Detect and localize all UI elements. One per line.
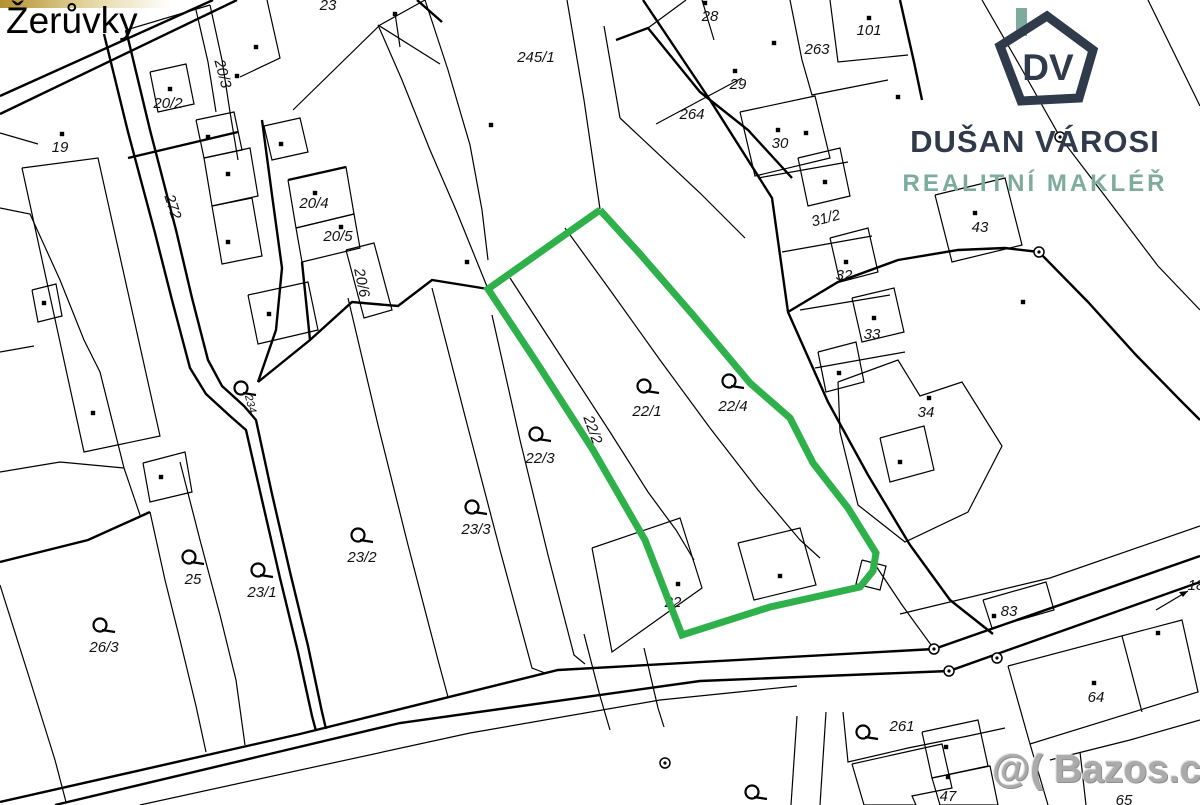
- parcel-boundary-line: [900, 526, 1200, 614]
- building-dot: [676, 582, 680, 586]
- parcel-label-20-4: 20/4: [298, 195, 328, 212]
- parcel-label-261: 261: [888, 718, 914, 735]
- building-dot: [1156, 631, 1160, 635]
- building-dot: [778, 574, 782, 578]
- parcel-label-264: 264: [678, 106, 704, 123]
- parcel-boundary-line: [264, 118, 308, 160]
- building-dot: [235, 74, 239, 78]
- parcel-label-26-3: 26/3: [88, 639, 119, 656]
- building-dot: [823, 180, 827, 184]
- land-use-symbol-tail: [360, 540, 373, 542]
- parcel-boundary-line: [1008, 620, 1198, 744]
- building-dot: [267, 312, 271, 316]
- building-dot: [898, 460, 902, 464]
- parcel-boundary-line: [32, 284, 62, 322]
- parcel-boundary-line: [143, 452, 192, 502]
- parcel-boundary-line: [1039, 252, 1200, 420]
- parcel-label-20-5: 20/5: [322, 228, 353, 245]
- building-dot: [168, 87, 172, 91]
- parcel-label-43: 43: [972, 219, 989, 236]
- land-use-symbol-tail: [191, 562, 204, 564]
- building-dot: [254, 45, 258, 49]
- building-dot: [837, 371, 841, 375]
- building-dot: [992, 614, 996, 618]
- parcel-boundary-line: [417, 0, 442, 22]
- parcel-label-32: 32: [836, 267, 853, 284]
- building-dot: [60, 132, 64, 136]
- parcel-boundary-line: [738, 528, 816, 600]
- land-use-symbol-tail: [102, 630, 115, 632]
- parcel-boundary-line: [204, 148, 258, 206]
- parcel-boundary-line: [302, 262, 310, 340]
- land-use-symbol-tail: [474, 512, 487, 514]
- building-dot: [226, 240, 230, 244]
- building-dot: [703, 1, 707, 5]
- parcel-boundary-line: [348, 298, 448, 697]
- parcel-boundary-line: [0, 208, 124, 468]
- parcel-boundary-line: [791, 716, 797, 805]
- parcel-label-272: 272: [160, 191, 184, 222]
- parcel-boundary-line: [140, 686, 797, 805]
- parcel-label-65: 65: [1116, 792, 1133, 805]
- parcel-label-23-3: 23/3: [460, 521, 491, 538]
- parcel-label-23: 23: [319, 0, 337, 14]
- parcel-label-64: 64: [1088, 689, 1105, 706]
- parcel-boundary-line: [798, 148, 850, 206]
- cadastral-map-page: 2320/320/21927220/420/520/6245/128101263…: [0, 0, 1200, 805]
- parcel-boundary-line: [565, 228, 820, 558]
- building-dot: [733, 69, 737, 73]
- building-dot: [1092, 681, 1096, 685]
- land-use-symbol-tail: [731, 386, 744, 388]
- building-dot: [465, 260, 469, 264]
- parcel-boundary-line: [510, 278, 694, 560]
- parcel-label-23-2: 23/2: [346, 549, 377, 566]
- parcel-boundary-line: [240, 0, 280, 77]
- building-dot: [206, 135, 210, 139]
- building-dot: [804, 131, 808, 135]
- building-dot: [946, 775, 950, 779]
- parcel-boundary-line: [983, 582, 1054, 628]
- building-dot: [279, 142, 283, 146]
- logo-monogram: DV: [1022, 47, 1074, 88]
- parcel-boundary-line: [0, 133, 38, 144]
- parcel-label-19: 19: [52, 139, 69, 156]
- parcel-label-263: 263: [803, 41, 830, 58]
- land-use-symbol-tail: [865, 737, 878, 739]
- parcel-boundary-line: [567, 0, 600, 209]
- parcel-label-22-3: 22/3: [524, 450, 555, 467]
- parcel-label-34: 34: [918, 404, 935, 421]
- building-dot: [91, 411, 95, 415]
- building-dot: [772, 41, 776, 45]
- building-dot: [776, 128, 780, 132]
- parcel-boundary-line: [818, 342, 864, 392]
- parcel-boundary-line: [872, 560, 934, 649]
- parcel-boundary-line: [820, 712, 826, 805]
- parcel-boundary-line: [815, 352, 905, 368]
- building-dot: [393, 12, 397, 16]
- parcel-label-47: 47: [940, 788, 957, 805]
- realtor-logo: DV DUŠAN VÁROSI REALITNÍ MAKLÉŘ: [870, 0, 1200, 215]
- building-dot: [844, 260, 848, 264]
- building-dot: [226, 172, 230, 176]
- parcel-label-20-2: 20/2: [152, 95, 183, 112]
- building-dot: [42, 301, 46, 305]
- parcel-label-245-1: 245/1: [516, 49, 555, 66]
- parcel-boundary-line: [150, 512, 206, 752]
- parcel-boundary-line: [212, 198, 262, 264]
- parcel-label-33: 33: [864, 326, 881, 343]
- parcel-boundary-line: [395, 13, 400, 47]
- building-dot: [339, 225, 343, 229]
- parcel-label-23-1: 23/1: [246, 584, 276, 601]
- parcel-label-83: 83: [1001, 603, 1018, 620]
- survey-point-center: [947, 669, 950, 672]
- parcel-boundary-line: [180, 462, 245, 745]
- highlighted-parcel-boundary: [488, 210, 876, 635]
- parcel-boundary-line: [584, 634, 610, 730]
- parcel-label-20-6: 20/6: [350, 266, 373, 300]
- place-name-label: Žerůvky: [6, 0, 138, 42]
- parcel-label-29: 29: [729, 76, 747, 93]
- parcel-boundary-line: [880, 426, 934, 482]
- parcel-boundary-line: [782, 236, 872, 252]
- parcel-boundary-line: [378, 25, 488, 289]
- parcel-label-22-1: 22/1: [631, 403, 661, 420]
- parcel-boundary-line: [293, 0, 425, 110]
- parcel-boundary-line: [616, 28, 792, 178]
- survey-point-center: [663, 761, 666, 764]
- logo-tagline-text: REALITNÍ MAKLÉŘ: [870, 170, 1200, 198]
- parcel-boundary-line: [378, 25, 440, 64]
- building-dot: [313, 191, 317, 195]
- land-use-symbol-tail: [646, 391, 659, 393]
- building-dot: [927, 396, 931, 400]
- building-dot: [872, 316, 876, 320]
- parcel-boundary-line: [922, 720, 988, 778]
- parcel-label-31-2: 31/2: [810, 206, 843, 230]
- logo-house-icon: DV: [992, 8, 1102, 116]
- land-use-symbol-tail: [754, 797, 767, 799]
- parcel-boundary-line: [0, 512, 150, 562]
- parcel-boundary-line: [0, 346, 34, 352]
- building-dot: [159, 475, 163, 479]
- parcel-label-25: 25: [184, 571, 202, 588]
- parcel-boundary-line: [124, 468, 140, 515]
- parcel-label-22-4: 22/4: [717, 398, 747, 415]
- parcel-boundary-line: [1122, 636, 1142, 712]
- survey-point-center: [1037, 250, 1040, 253]
- land-use-symbol-tail: [538, 439, 551, 441]
- parcel-boundary-line: [425, 0, 488, 260]
- survey-point-center: [932, 647, 935, 650]
- parcel-boundary-line: [788, 248, 1039, 312]
- parcel-label-28: 28: [701, 8, 719, 25]
- parcel-label-20-3: 20/3: [210, 57, 234, 91]
- parcel-label-30: 30: [772, 135, 789, 152]
- parcel-boundary-line: [0, 585, 66, 802]
- parcel-boundary-line: [0, 462, 124, 472]
- parcel-label-18: 18: [1188, 577, 1200, 594]
- building-dot: [1021, 300, 1025, 304]
- bazos-watermark: @( Bazos.cz: [992, 748, 1200, 792]
- logo-name-text: DUŠAN VÁROSI: [870, 124, 1200, 160]
- parcel-boundary-line: [838, 360, 1002, 542]
- building-dot: [944, 745, 948, 749]
- parcel-boundary-line: [620, 118, 745, 238]
- building-dot: [489, 123, 493, 127]
- land-use-symbol-tail: [260, 575, 273, 577]
- survey-point-center: [995, 656, 998, 659]
